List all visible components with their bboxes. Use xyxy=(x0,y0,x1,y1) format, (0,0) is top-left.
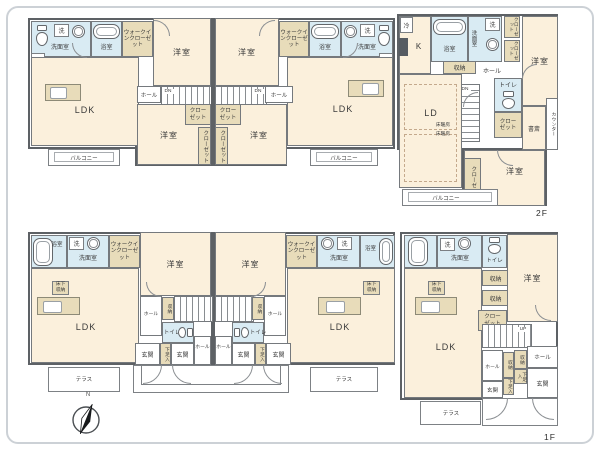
hall-label: ホール xyxy=(215,343,232,350)
entrance-1f-2b: 玄関 xyxy=(266,343,291,365)
shoebox-1f-3a: 下足入 xyxy=(514,369,527,384)
toilet-icon xyxy=(234,327,249,338)
sink xyxy=(50,87,67,99)
floor-heating-label: 床暖房 xyxy=(430,130,456,137)
closet-2f-a2: クローゼット xyxy=(198,127,211,165)
sink xyxy=(43,301,62,313)
storage-2f-c: 収納 xyxy=(443,61,476,74)
hall-1f-2b xyxy=(215,336,232,365)
porch-step xyxy=(141,365,281,385)
washing-machine-box: 洗 xyxy=(440,238,455,251)
hall-label: ホール xyxy=(264,310,286,317)
balcony-label: バルコニー xyxy=(60,154,108,162)
washing-machine-icon xyxy=(344,25,357,38)
underfloor-storage-1f-3: 床下収納 xyxy=(428,281,445,295)
bath-label: 浴室 xyxy=(48,240,66,248)
hall-label: ホール xyxy=(140,310,162,317)
floor-2-label: 2F xyxy=(536,208,548,218)
bedroom-label: 洋室 xyxy=(238,130,280,141)
closet-2f-c1: クローゼット xyxy=(504,16,520,38)
closet-2f-c3: クローゼット xyxy=(494,112,522,138)
ldk-label: LDK xyxy=(316,322,364,332)
bedroom-2f-c-top: 洋室 xyxy=(522,16,558,106)
floor-1-label: 1F xyxy=(544,432,556,442)
washing-machine-icon xyxy=(87,237,100,250)
stairs-1f-2 xyxy=(215,296,254,322)
terrace-label: テラス xyxy=(66,375,102,383)
kitchen-label: K xyxy=(410,42,428,51)
down-label: DN xyxy=(162,89,174,94)
terrace-label: テラス xyxy=(433,409,469,417)
fridge-2f-c: 冷 xyxy=(400,17,413,33)
ldk-label: LDK xyxy=(62,322,110,332)
compass: N xyxy=(66,392,110,444)
storage-1f-3c: 収納 xyxy=(503,352,514,378)
stove-icon xyxy=(399,38,408,56)
washing-machine-box: 洗 xyxy=(54,24,69,37)
entrance-1f-1a: 玄関 xyxy=(135,343,160,365)
toilet-icon xyxy=(488,237,501,254)
washroom-label: 洗面室 xyxy=(440,253,480,262)
hall-2f-b: ホール xyxy=(265,86,293,103)
ldk-label: LDK xyxy=(318,104,368,114)
ld-label: LD xyxy=(418,108,444,118)
toilet-label: トイレ xyxy=(483,256,506,264)
stairs-1f-1 xyxy=(174,296,213,322)
closet-2f-b: クローゼット xyxy=(215,104,241,125)
underfloor-storage-1f-1: 床下収納 xyxy=(52,281,69,295)
toilet-label: トイレ xyxy=(496,80,520,89)
washing-machine-box: 洗 xyxy=(360,24,375,37)
bathtub-icon xyxy=(93,24,120,39)
hall-label: ホール xyxy=(194,343,211,350)
entrance-1f-3b: 玄関 xyxy=(527,368,558,398)
ldk-2f-a xyxy=(31,57,139,146)
shoebox-1f-3b: 下足入 xyxy=(503,378,514,395)
washroom-label: 洗面室 xyxy=(69,253,107,262)
ldk-1f-1 xyxy=(31,268,139,363)
wic-1f-2: ウォークインクローゼット xyxy=(286,235,317,268)
washing-machine-box: 洗 xyxy=(337,237,352,250)
toilet-label: トイレ xyxy=(249,328,267,336)
floor-heating-area xyxy=(404,134,457,182)
storage-1f-3b: 収納 xyxy=(482,290,509,306)
bath-label: 浴室 xyxy=(431,44,468,53)
washing-machine-icon xyxy=(72,25,85,38)
balcony-label: バルコニー xyxy=(418,194,474,202)
ldk-label: LDK xyxy=(60,105,110,115)
toilet-icon xyxy=(178,327,193,338)
floor-heating-label: 床暖房 xyxy=(430,121,456,128)
washing-machine-box: 洗 xyxy=(485,18,500,31)
entrance-1f-1b: 玄関 xyxy=(171,343,194,365)
washing-machine-icon xyxy=(321,237,334,250)
shoebox-1f-2: 下足入 xyxy=(255,343,266,365)
washroom-label: 洗面室 xyxy=(470,22,476,54)
sink xyxy=(421,301,440,313)
bathtub-icon xyxy=(433,19,466,35)
toilet-icon xyxy=(502,91,515,109)
closet-2f-a: クローゼット xyxy=(185,104,211,125)
study-2f-c: 書斎 xyxy=(522,106,546,150)
bathtub-icon xyxy=(311,24,339,39)
bath-label: 浴室 xyxy=(361,244,380,252)
hall-2f-a: ホール xyxy=(137,86,161,103)
bathtub-icon xyxy=(379,238,393,265)
hall-1f-3b: ホール xyxy=(527,346,558,368)
compass-north-icon xyxy=(66,396,106,440)
washing-machine-icon xyxy=(486,38,499,51)
wic-1f-1: ウォークインクローゼット xyxy=(109,235,140,268)
down-label: DN xyxy=(252,89,264,94)
wic-2f-a: ウォークインクローゼット xyxy=(122,21,153,57)
washing-machine-box: 洗 xyxy=(69,237,84,250)
floor-plan: 洗 洗面室 浴室 ウォークインクローゼット 洋室 冷 LDK ホール DN 洋室… xyxy=(0,0,600,450)
entrance-1f-2a: 玄関 xyxy=(232,343,255,365)
terrace-label: テラス xyxy=(326,375,362,383)
sink xyxy=(362,83,379,95)
bedroom-label: 洋室 xyxy=(148,130,190,141)
bathtub-icon xyxy=(408,237,428,266)
closet-2f-b2: クローゼット xyxy=(215,127,228,165)
entrance-1f-3a: 玄関 xyxy=(482,381,503,398)
storage-1f-3d: 収納 xyxy=(514,350,527,369)
hall-label: ホール xyxy=(478,66,506,75)
underfloor-storage-1f-2: 床下収納 xyxy=(363,281,380,295)
storage-1f-1: 収納 xyxy=(162,297,174,320)
hall-1f-1b xyxy=(194,336,211,365)
bedroom-label: 洋室 xyxy=(494,166,536,177)
bath-label: 浴室 xyxy=(93,42,120,51)
balcony-label: バルコニー xyxy=(320,154,368,162)
closet-2f-c2: クローゼット xyxy=(504,40,520,62)
hall-label: ホール xyxy=(482,363,503,370)
counter-2f-c: カウンター xyxy=(546,98,558,150)
shoebox-1f-1: 下足入 xyxy=(160,343,171,365)
ldk-label: LDK xyxy=(422,342,470,352)
storage-1f-3a: 収納 xyxy=(482,270,509,286)
washroom-label: 洗面室 xyxy=(319,253,359,262)
ldk-2f-b xyxy=(287,57,393,146)
washing-machine-icon xyxy=(458,237,471,250)
bath-label: 浴室 xyxy=(309,42,341,51)
sink xyxy=(326,301,345,313)
up-label: UP xyxy=(517,327,529,332)
wic-2f-b: ウォークインクローゼット xyxy=(279,21,309,57)
storage-1f-2: 収納 xyxy=(252,297,264,320)
